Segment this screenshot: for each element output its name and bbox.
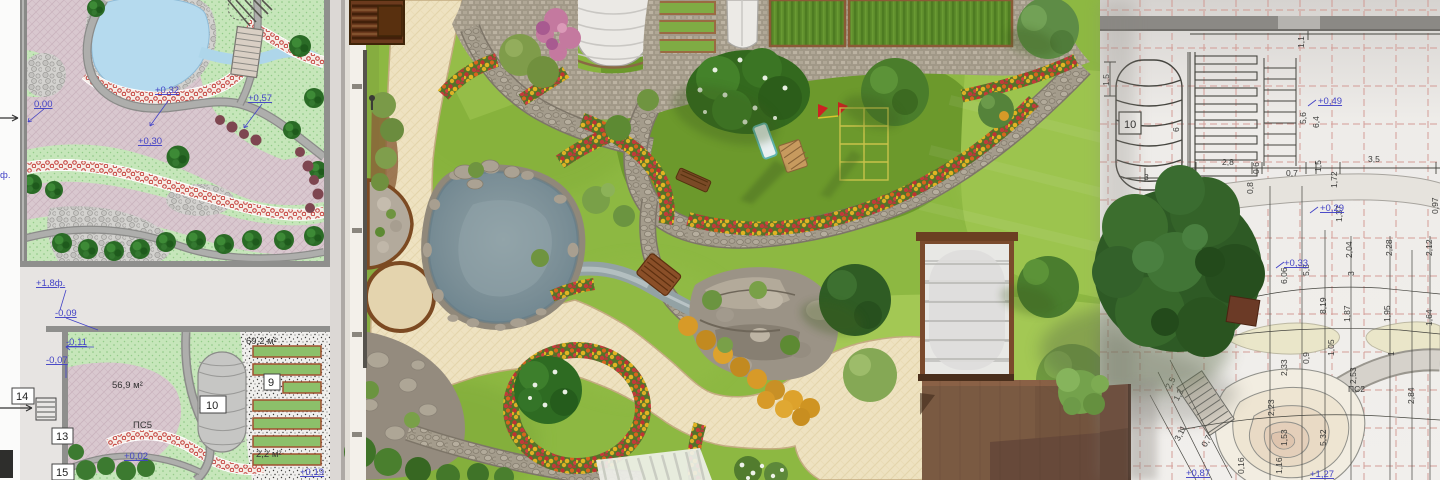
svg-text:10: 10 (206, 400, 218, 412)
svg-text:0,9: 0,9 (1301, 352, 1311, 364)
svg-text:2,12: 2,12 (1424, 239, 1434, 256)
svg-text:ПС2: ПС2 (1348, 384, 1365, 394)
svg-text:1,1: 1,1 (1296, 36, 1306, 48)
svg-text:1,05: 1,05 (1326, 339, 1336, 356)
svg-text:ПС5: ПС5 (133, 420, 152, 431)
svg-text:5,32: 5,32 (1318, 429, 1328, 446)
svg-text:+0,30: +0,30 (138, 136, 162, 147)
svg-text:5,6: 5,6 (1298, 112, 1308, 124)
svg-text:2,53: 2,53 (1348, 367, 1358, 384)
svg-text:1,72: 1,72 (1329, 171, 1339, 188)
svg-text:-0,11: -0,11 (66, 337, 87, 348)
svg-text:1: 1 (1386, 351, 1396, 356)
svg-text:+0,29: +0,29 (1320, 203, 1344, 214)
svg-text:2,84: 2,84 (1406, 387, 1416, 404)
svg-text:+0,87: +0,87 (1186, 468, 1210, 479)
svg-text:+1,8ф.: +1,8ф. (36, 278, 65, 289)
svg-text:0,16: 0,16 (1236, 457, 1246, 474)
svg-text:14: 14 (16, 391, 28, 403)
svg-text:+0,02: +0,02 (124, 451, 148, 462)
svg-text:2,2 м²: 2,2 м² (256, 449, 282, 460)
svg-text:2,04: 2,04 (1344, 241, 1354, 258)
svg-text:ф.: ф. (0, 170, 10, 181)
svg-text:+0,19: +0,19 (300, 467, 324, 478)
svg-text:8,19: 8,19 (1318, 297, 1328, 314)
svg-text:3: 3 (1144, 172, 1149, 182)
svg-text:0,6: 0,6 (1251, 162, 1261, 174)
svg-text:0,8: 0,8 (1245, 182, 1255, 194)
svg-text:13: 13 (56, 431, 68, 443)
svg-text:9: 9 (268, 377, 274, 389)
svg-text:56,9 м²: 56,9 м² (112, 380, 143, 391)
svg-text:1,53: 1,53 (1279, 429, 1289, 446)
svg-text:+0,32: +0,32 (155, 85, 179, 96)
svg-text:2,28: 2,28 (1384, 239, 1394, 256)
svg-text:1,5: 1,5 (1313, 160, 1323, 172)
svg-text:1,64: 1,64 (1424, 309, 1434, 326)
svg-text:2,8: 2,8 (1222, 157, 1234, 167)
svg-text:0,7: 0,7 (1286, 168, 1298, 178)
svg-text:1,95: 1,95 (1382, 305, 1392, 322)
svg-text:1,16: 1,16 (1274, 457, 1284, 474)
svg-text:-0,07: -0,07 (46, 355, 68, 366)
svg-text:6,06: 6,06 (1279, 267, 1289, 284)
svg-text:1,87: 1,87 (1342, 305, 1352, 322)
svg-text:-0,09: -0,09 (55, 308, 77, 319)
svg-text:+0,33: +0,33 (1284, 258, 1308, 269)
svg-text:+0,57: +0,57 (248, 93, 272, 104)
svg-text:3: 3 (1346, 271, 1356, 276)
svg-text:15: 15 (56, 467, 68, 479)
svg-text:+1,27: +1,27 (1310, 469, 1334, 480)
svg-text:6: 6 (1171, 127, 1181, 132)
svg-text:69,2 м²: 69,2 м² (246, 336, 277, 347)
svg-text:3,5: 3,5 (1368, 154, 1380, 164)
svg-text:+0,49: +0,49 (1318, 96, 1342, 107)
svg-text:2,23: 2,23 (1266, 399, 1276, 416)
svg-text:2,33: 2,33 (1279, 359, 1289, 376)
svg-text:0,97: 0,97 (1430, 197, 1440, 214)
svg-text:6,4: 6,4 (1311, 116, 1321, 128)
svg-text:0,00: 0,00 (34, 99, 53, 110)
